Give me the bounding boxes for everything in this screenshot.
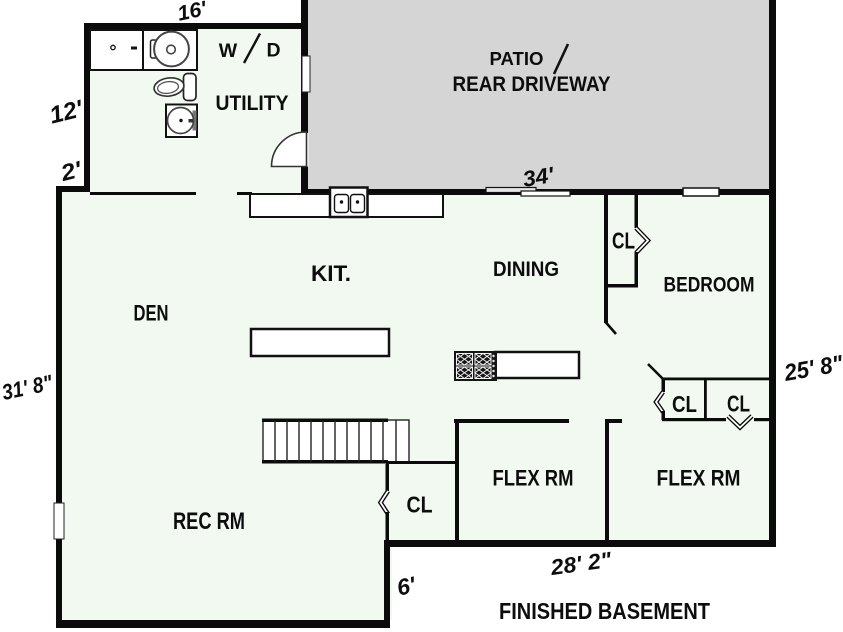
svg-text:CL: CL [727, 391, 750, 417]
svg-text:CL: CL [407, 492, 433, 518]
svg-text:CL: CL [672, 391, 697, 417]
svg-text:DINING: DINING [493, 258, 559, 281]
svg-text:CL: CL [612, 228, 635, 254]
svg-text:BEDROOM: BEDROOM [664, 274, 755, 297]
svg-text:D: D [266, 40, 280, 62]
svg-text:UTILITY: UTILITY [216, 92, 289, 115]
svg-text:KIT.: KIT. [311, 261, 351, 286]
svg-text:DEN: DEN [134, 301, 169, 326]
svg-text:REC RM: REC RM [173, 508, 245, 535]
svg-text:FLEX RM: FLEX RM [493, 466, 574, 491]
svg-text:FINISHED BASEMENT: FINISHED BASEMENT [499, 598, 710, 624]
svg-text:REAR DRIVEWAY: REAR DRIVEWAY [453, 73, 611, 96]
svg-text:W: W [219, 40, 238, 62]
svg-text:PATIO: PATIO [490, 49, 544, 69]
svg-text:FLEX RM: FLEX RM [657, 466, 741, 491]
